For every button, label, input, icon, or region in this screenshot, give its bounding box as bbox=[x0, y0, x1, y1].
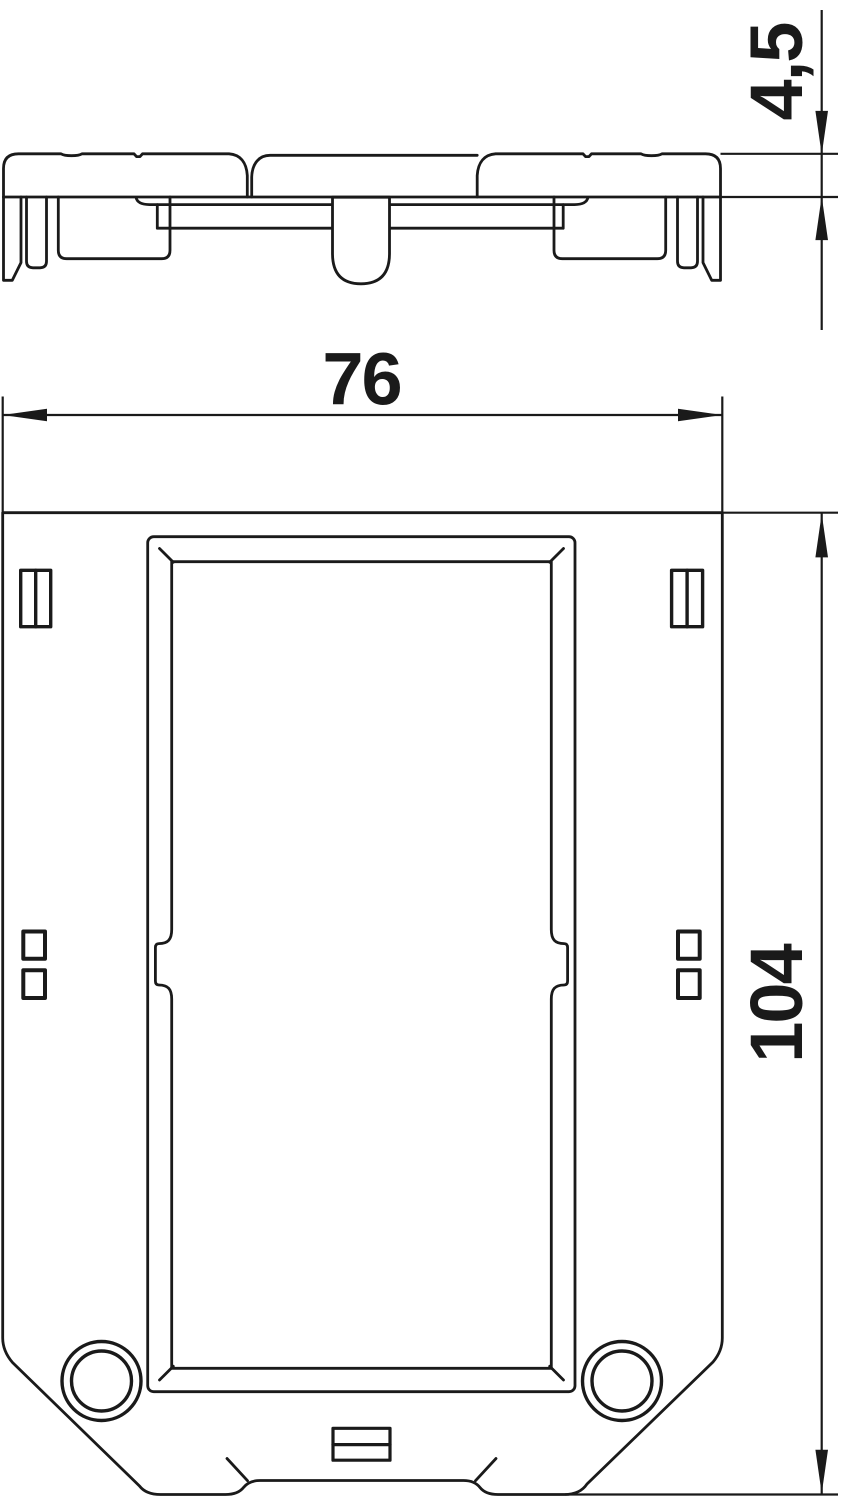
bottom-center-aperture bbox=[333, 1428, 390, 1460]
frame-outer-edge bbox=[148, 537, 575, 1392]
height-arrow-top bbox=[815, 514, 828, 558]
front-recess-tick-right bbox=[476, 1459, 497, 1481]
dimension-height: 104 bbox=[565, 513, 838, 1495]
frame-chamfer-bottom-left bbox=[160, 1366, 174, 1380]
height-arrow-bottom bbox=[815, 1450, 828, 1494]
drawing-canvas: 4,5 76 104 bbox=[0, 0, 842, 1500]
frame-opening-edge bbox=[155, 562, 567, 1369]
side-inner-leg-right bbox=[678, 197, 698, 268]
side-hook-leg-right bbox=[703, 197, 721, 280]
front-view bbox=[3, 513, 723, 1495]
side-foot-left bbox=[58, 197, 170, 259]
screw-boss-left bbox=[62, 1342, 141, 1421]
width-arrow-right bbox=[678, 409, 722, 422]
side-center-tab bbox=[333, 197, 390, 284]
width-label: 76 bbox=[322, 338, 400, 421]
side-squares-left bbox=[23, 932, 45, 999]
side-plate-middle-hump bbox=[252, 155, 478, 197]
frame-chamfer-bottom-right bbox=[550, 1366, 564, 1380]
dimension-thickness: 4,5 bbox=[721, 10, 839, 330]
thickness-label: 4,5 bbox=[735, 23, 818, 121]
frame-chamfer-top-right bbox=[550, 549, 564, 563]
side-plate-right-section bbox=[477, 154, 720, 197]
dimension-width: 76 bbox=[3, 338, 723, 512]
width-arrow-left bbox=[3, 409, 47, 422]
latch-window-right bbox=[672, 570, 703, 626]
side-view bbox=[4, 154, 721, 284]
latch-window-left bbox=[21, 570, 51, 626]
side-inner-leg-left bbox=[27, 197, 47, 268]
side-plate-left-section bbox=[4, 154, 248, 197]
side-foot-right bbox=[554, 197, 666, 259]
height-label: 104 bbox=[735, 943, 818, 1062]
frame-chamfer-top-left bbox=[160, 549, 174, 563]
front-recess-tick-left bbox=[227, 1459, 248, 1481]
technical-drawing: 4,5 76 104 bbox=[0, 0, 842, 1500]
side-hook-leg-left bbox=[4, 197, 22, 280]
screw-boss-right bbox=[583, 1342, 662, 1421]
side-squares-right bbox=[678, 932, 700, 999]
front-outline bbox=[3, 513, 723, 1495]
thickness-arrow-bottom bbox=[815, 196, 828, 240]
